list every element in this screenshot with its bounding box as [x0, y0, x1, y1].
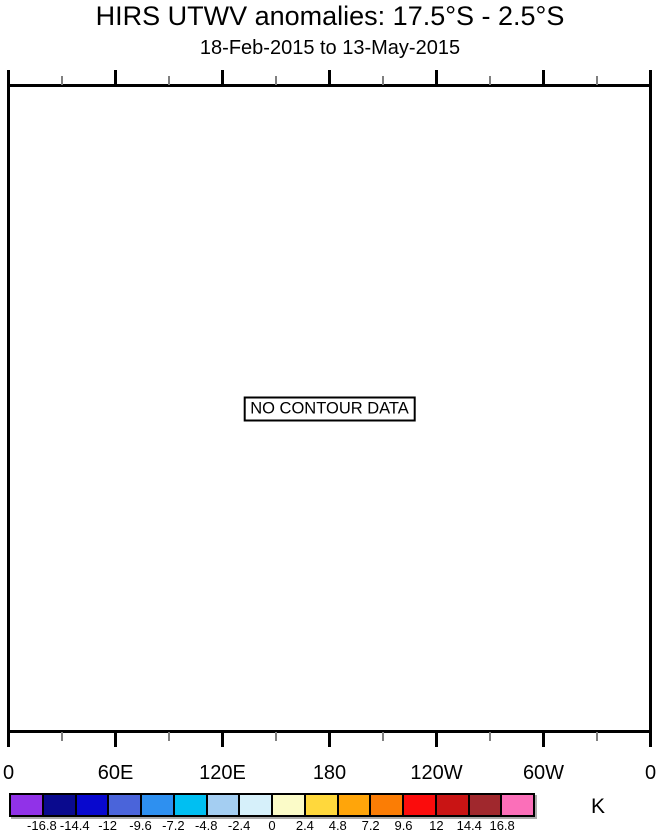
- colorbar-unit-label: K: [576, 795, 620, 819]
- colorbar-tick-label: 7.2: [362, 818, 380, 833]
- colorbar-segment: [173, 793, 208, 817]
- colorbar-segment: [435, 793, 470, 817]
- colorbar-tick-label: -4.8: [195, 818, 217, 833]
- x-axis-tick-label: 120E: [199, 762, 246, 785]
- colorbar-tick-label: 9.6: [394, 818, 412, 833]
- x-axis-tick-label: 60W: [523, 762, 564, 785]
- colorbar-segment: [369, 793, 404, 817]
- x-axis-bottom-major-tick: [435, 731, 438, 747]
- colorbar-tick-label: 4.8: [329, 818, 347, 833]
- x-axis-tick-label: 180: [313, 762, 346, 785]
- colorbar-segment: [337, 793, 372, 817]
- x-axis-bottom-minor-tick: [382, 732, 384, 741]
- x-axis-tick-label: 60E: [98, 762, 134, 785]
- x-axis-bottom-minor-tick: [61, 732, 63, 741]
- colorbar-tick-label: -7.2: [162, 818, 184, 833]
- x-axis-bottom-major-tick: [542, 731, 545, 747]
- colorbar-segment: [9, 793, 44, 817]
- colorbar-tick-label: 16.8: [489, 818, 514, 833]
- x-axis-bottom-major-tick: [114, 731, 117, 747]
- x-axis-tick-label: 120W: [410, 762, 462, 785]
- x-axis-bottom-minor-tick: [168, 732, 170, 741]
- x-axis-bottom-major-tick: [7, 731, 10, 747]
- colorbar-segment: [238, 793, 273, 817]
- colorbar-tick-label: 0: [268, 818, 275, 833]
- x-axis-bottom-major-tick: [221, 731, 224, 747]
- colorbar-segment: [107, 793, 142, 817]
- colorbar: [9, 793, 535, 817]
- colorbar-segment: [42, 793, 77, 817]
- colorbar-tick-label: -9.6: [129, 818, 151, 833]
- x-axis-bottom-minor-tick: [275, 732, 277, 741]
- x-axis-bottom-minor-tick: [596, 732, 598, 741]
- x-axis-bottom-major-tick: [649, 731, 652, 747]
- x-axis-tick-label: 0: [645, 762, 656, 785]
- colorbar-segment: [271, 793, 306, 817]
- x-axis-tick-label: 0: [3, 762, 14, 785]
- plot-area: NO CONTOUR DATA: [7, 84, 652, 733]
- plot-title: HIRS UTWV anomalies: 17.5°S - 2.5°S: [0, 1, 660, 32]
- colorbar-segment: [304, 793, 339, 817]
- colorbar-segment: [500, 793, 535, 817]
- colorbar-segment: [468, 793, 503, 817]
- colorbar-tick-label: -16.8: [27, 818, 57, 833]
- colorbar-segment: [402, 793, 437, 817]
- colorbar-tick-label: 12: [429, 818, 443, 833]
- colorbar-tick-label: -12: [98, 818, 117, 833]
- colorbar-tick-label: 14.4: [457, 818, 482, 833]
- plot-subtitle: 18-Feb-2015 to 13-May-2015: [0, 37, 660, 60]
- colorbar-tick-label: -2.4: [228, 818, 250, 833]
- x-axis-bottom-major-tick: [328, 731, 331, 747]
- colorbar-segment: [75, 793, 110, 817]
- colorbar-tick-label: 2.4: [296, 818, 314, 833]
- colorbar-segment: [206, 793, 241, 817]
- no-contour-data-label: NO CONTOUR DATA: [243, 396, 416, 421]
- figure: HIRS UTWV anomalies: 17.5°S - 2.5°S 18-F…: [0, 0, 660, 834]
- colorbar-tick-label: -14.4: [60, 818, 90, 833]
- colorbar-segment: [140, 793, 175, 817]
- x-axis-bottom-minor-tick: [489, 732, 491, 741]
